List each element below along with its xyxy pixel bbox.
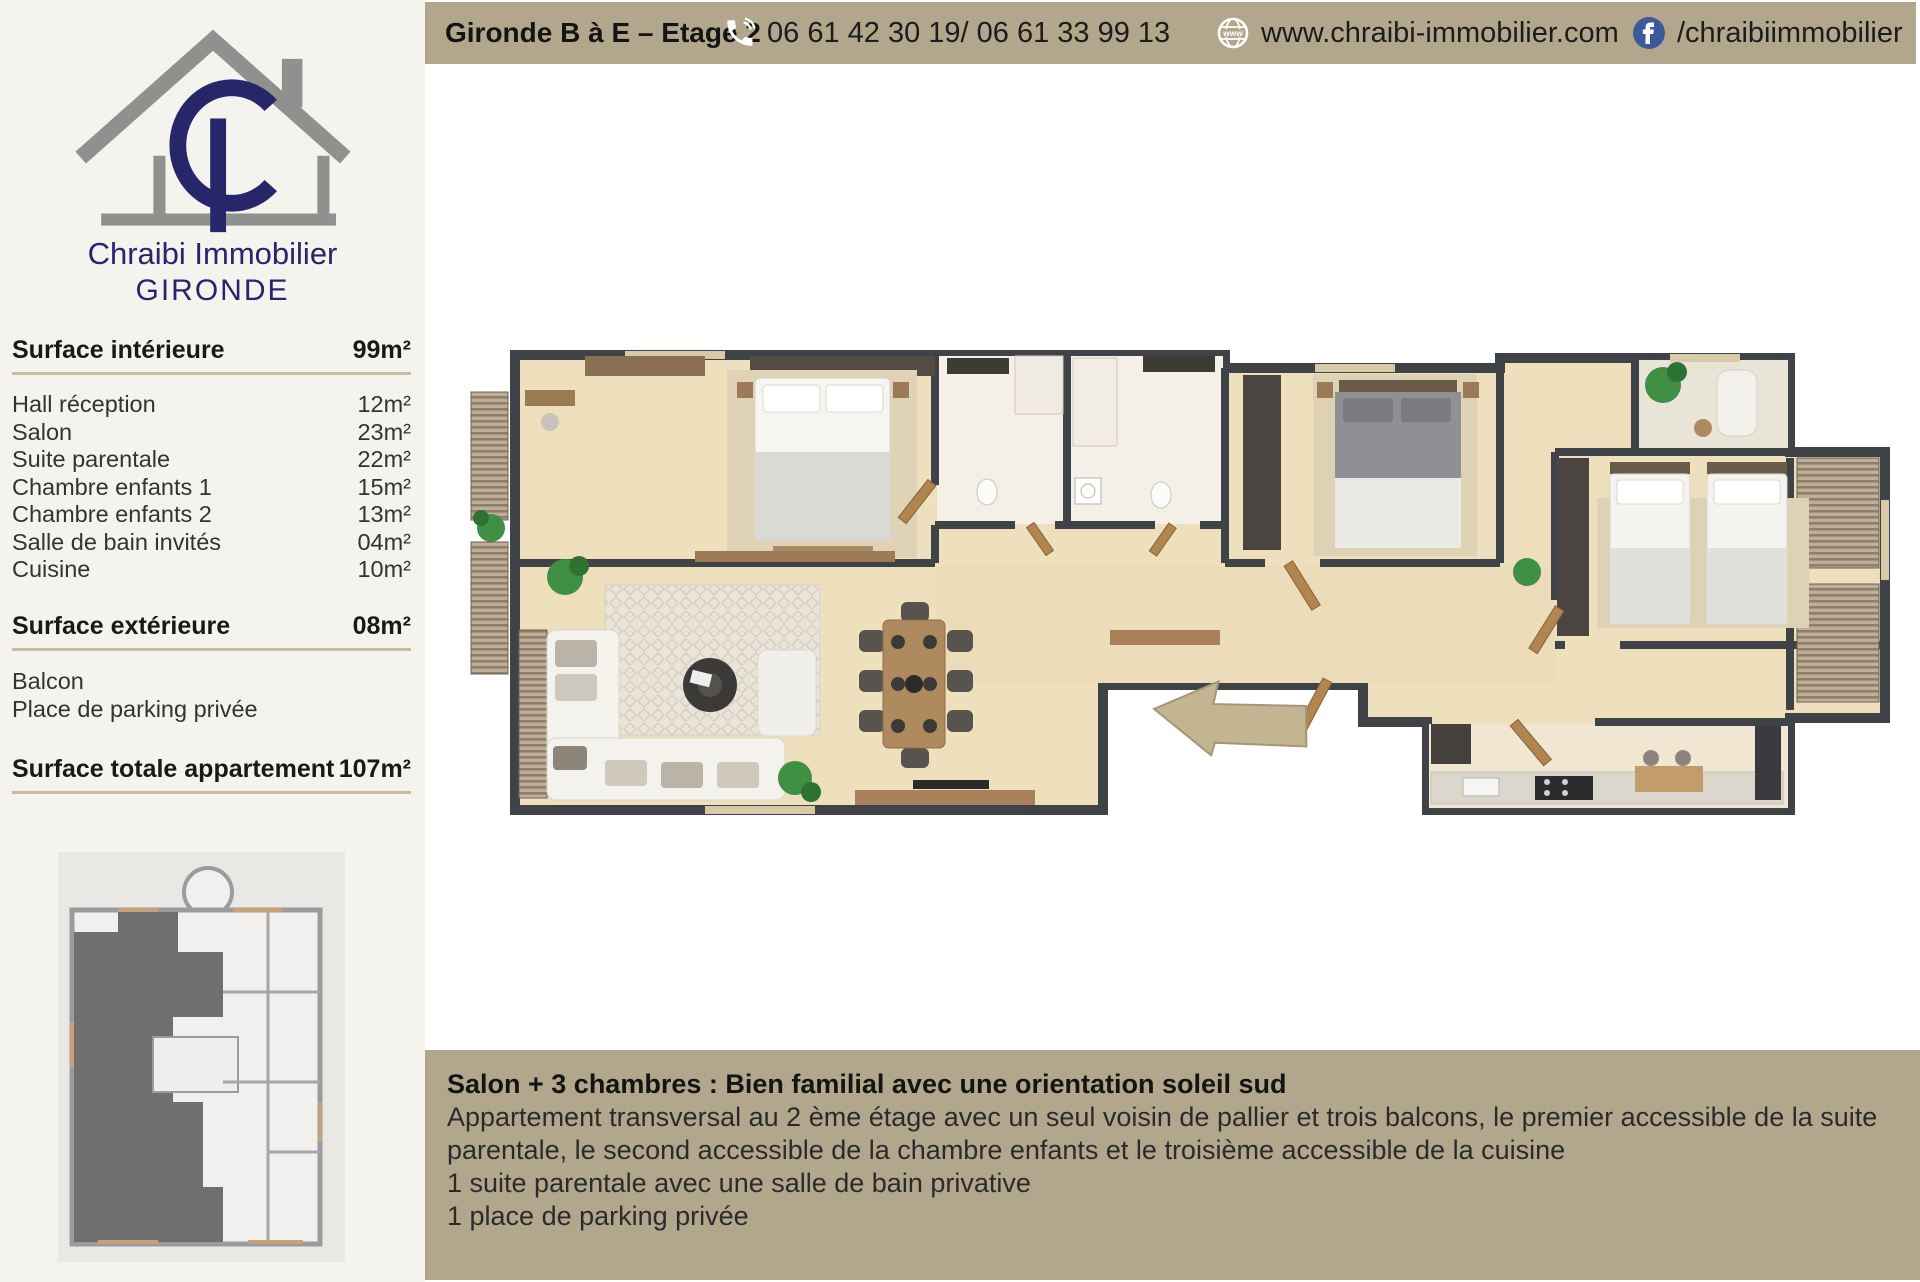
room-value: 22m²: [357, 446, 411, 474]
facebook-contact[interactable]: /chraibiimmobilier: [1631, 2, 1903, 64]
exterior-list: Balcon Place de parking privée: [12, 667, 411, 723]
interior-surface-header: Surface intérieure 99m²: [12, 336, 411, 375]
room-value: 10m²: [357, 556, 411, 584]
room-row: Salon23m²: [12, 419, 411, 447]
exterior-surface-value: 08m²: [353, 612, 411, 641]
exterior-surface-header: Surface extérieure 08m²: [12, 612, 411, 651]
room-label: Chambre enfants 1: [12, 474, 212, 502]
exterior-row: Place de parking privée: [12, 695, 411, 723]
room-row: Cuisine10m²: [12, 556, 411, 584]
total-surface-header: Surface totale appartement 107m²: [12, 755, 411, 794]
room-label: Salon: [12, 419, 72, 447]
brand-name: Chraibi Immobilier: [0, 236, 425, 272]
globe-www-icon: www: [1215, 15, 1251, 51]
description-line: 1 suite parentale avec une salle de bain…: [447, 1167, 1890, 1200]
exterior-row: Balcon: [12, 667, 411, 695]
room-row: Chambre enfants 115m²: [12, 474, 411, 502]
description-line: parentale, le second accessible de la ch…: [447, 1134, 1890, 1167]
description-line: 1 place de parking privée: [447, 1200, 1890, 1233]
svg-text:www: www: [1222, 28, 1243, 38]
floorplan-3d: [455, 330, 1920, 830]
room-row: Chambre enfants 213m²: [12, 501, 411, 529]
phone-numbers[interactable]: 06 61 42 30 19/ 06 61 33 99 13: [767, 17, 1170, 50]
agency-logo: [73, 16, 353, 234]
phone-icon: [723, 16, 757, 50]
website-contact[interactable]: www www.chraibi-immobilier.com: [1215, 2, 1619, 64]
room-value: 13m²: [357, 501, 411, 529]
room-value: 12m²: [357, 391, 411, 419]
flyer-page: Chraibi Immobilier GIRONDE Surface intér…: [0, 0, 1920, 1282]
chambre-enfants-1: [1243, 374, 1479, 556]
room-value: 04m²: [357, 529, 411, 557]
ci-monogram: [177, 88, 270, 232]
header-bar: Gironde B à E – Etage 2 06 61 42 30 19/ …: [425, 2, 1916, 64]
plan-title: Gironde B à E – Etage 2: [445, 2, 761, 64]
interior-surface-value: 99m²: [353, 336, 411, 365]
sidebar: Chraibi Immobilier GIRONDE Surface intér…: [0, 0, 425, 1282]
exterior-label: Place de parking privée: [12, 695, 258, 723]
room-row: Hall réception12m²: [12, 391, 411, 419]
exterior-label: Balcon: [12, 667, 84, 695]
floorplan-svg: [455, 330, 1920, 830]
balcony-left: [471, 392, 508, 674]
website-url[interactable]: www.chraibi-immobilier.com: [1261, 17, 1619, 50]
brand-region: GIRONDE: [0, 274, 425, 308]
key-plan-svg: [58, 852, 345, 1262]
description-title: Salon + 3 chambres : Bien familial avec …: [447, 1068, 1890, 1101]
facebook-handle[interactable]: /chraibiimmobilier: [1677, 17, 1903, 50]
room-row: Suite parentale22m²: [12, 446, 411, 474]
surface-table: Surface intérieure 99m² Hall réception12…: [12, 336, 411, 794]
description-bar: Salon + 3 chambres : Bien familial avec …: [425, 1050, 1920, 1280]
description-line: Appartement transversal au 2 ème étage a…: [447, 1101, 1890, 1134]
interior-surface-label: Surface intérieure: [12, 336, 225, 365]
salon-screen: [519, 630, 547, 798]
room-row: Salle de bain invités04m²: [12, 529, 411, 557]
facebook-icon: [1631, 15, 1667, 51]
phone-contact[interactable]: 06 61 42 30 19/ 06 61 33 99 13: [723, 2, 1170, 64]
room-label: Cuisine: [12, 556, 90, 584]
room-value: 23m²: [357, 419, 411, 447]
total-surface-value: 107m²: [339, 755, 411, 784]
room-label: Salle de bain invités: [12, 529, 221, 557]
total-surface-label: Surface totale appartement: [12, 755, 334, 784]
room-label: Suite parentale: [12, 446, 170, 474]
exterior-surface-label: Surface extérieure: [12, 612, 230, 641]
hall-floor: [937, 566, 1555, 683]
room-label: Chambre enfants 2: [12, 501, 212, 529]
room-value: 15m²: [357, 474, 411, 502]
key-plan-thumbnail: [58, 852, 345, 1262]
room-label: Hall réception: [12, 391, 156, 419]
room-list: Hall réception12m² Salon23m² Suite paren…: [12, 391, 411, 584]
